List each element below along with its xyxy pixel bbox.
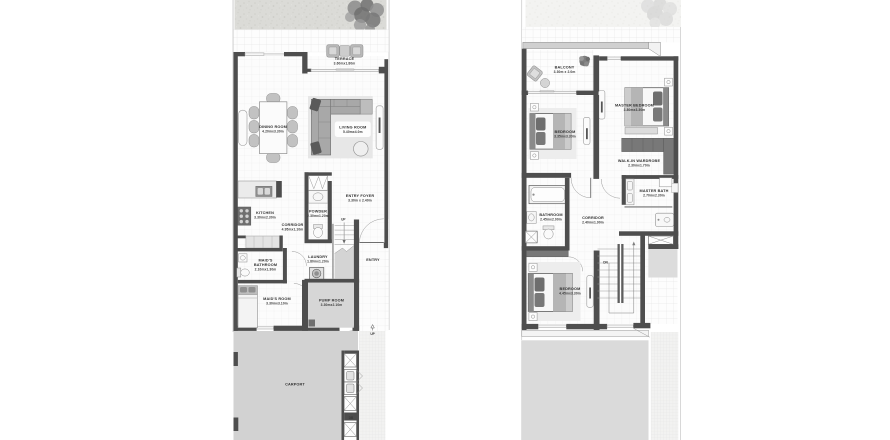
svg-text:4.20mx3.30m: 4.20mx3.30m [262,129,284,133]
svg-text:TERRACE: TERRACE [335,57,355,61]
svg-text:3.80mx3.30m: 3.80mx3.30m [624,108,646,112]
svg-text:BEDROOM: BEDROOM [560,287,581,291]
svg-text:4.45mx3.30m: 4.45mx3.30m [559,291,581,295]
svg-text:LIVING ROOM: LIVING ROOM [339,126,366,130]
svg-text:MASTER BEDROOM: MASTER BEDROOM [615,103,654,107]
svg-text:3.30mx2.30m: 3.30mx2.30m [254,216,276,220]
svg-text:DINING ROOM: DINING ROOM [259,125,287,129]
svg-text:BALCONY: BALCONY [555,66,575,70]
svg-text:PUMP ROOM: PUMP ROOM [319,299,344,303]
svg-text:LAUNDRY: LAUNDRY [308,255,328,259]
svg-text:1.80mx1.20m: 1.80mx1.20m [307,260,329,264]
svg-text:CARPORT: CARPORT [285,383,305,387]
svg-text:WALK-IN WARDROBE: WALK-IN WARDROBE [618,159,661,163]
svg-text:ENTRY FOYER: ENTRY FOYER [346,194,375,198]
svg-text:2.70mx2.30m: 2.70mx2.30m [643,193,665,197]
svg-text:4.95mx1.10m: 4.95mx1.10m [282,228,304,232]
svg-text:DB: DB [349,416,354,420]
svg-text:3.30mx3.10m: 3.30mx3.10m [266,302,288,306]
svg-text:2.45mx2.00m: 2.45mx2.00m [540,218,562,222]
svg-text:CORRIDOR: CORRIDOR [282,223,304,227]
svg-text:POWDER: POWDER [309,210,327,214]
svg-text:MAID'S ROOM: MAID'S ROOM [263,297,291,301]
svg-text:3.30m x 2.40m: 3.30m x 2.40m [348,198,372,202]
svg-text:2.40mx1.90m: 2.40mx1.90m [582,221,604,225]
svg-text:ENTRY: ENTRY [366,258,380,262]
svg-text:2.30mx1.70m: 2.30mx1.70m [628,163,650,167]
svg-text:5.40mx4.0m: 5.40mx4.0m [343,130,363,134]
svg-text:2.10mx1.30m: 2.10mx1.30m [255,267,277,271]
svg-text:KITCHEN: KITCHEN [256,211,274,215]
svg-text:CORRIDOR: CORRIDOR [582,216,604,220]
svg-text:BATHROOM: BATHROOM [539,213,562,217]
svg-text:BEDROOM: BEDROOM [555,130,576,134]
svg-text:2.30mx1.20m: 2.30mx1.20m [307,214,329,218]
svg-text:3.60mx1.80m: 3.60mx1.80m [334,61,356,65]
svg-text:BATHROOM: BATHROOM [254,263,277,267]
svg-text:DN: DN [603,261,608,265]
svg-text:3.30mx2.10m: 3.30mx2.10m [321,303,343,307]
svg-text:MASTER BATH: MASTER BATH [640,189,669,193]
svg-text:3.35mx3.30m: 3.35mx3.30m [554,134,576,138]
svg-text:3.30m x 2.0m: 3.30m x 2.0m [554,70,576,74]
